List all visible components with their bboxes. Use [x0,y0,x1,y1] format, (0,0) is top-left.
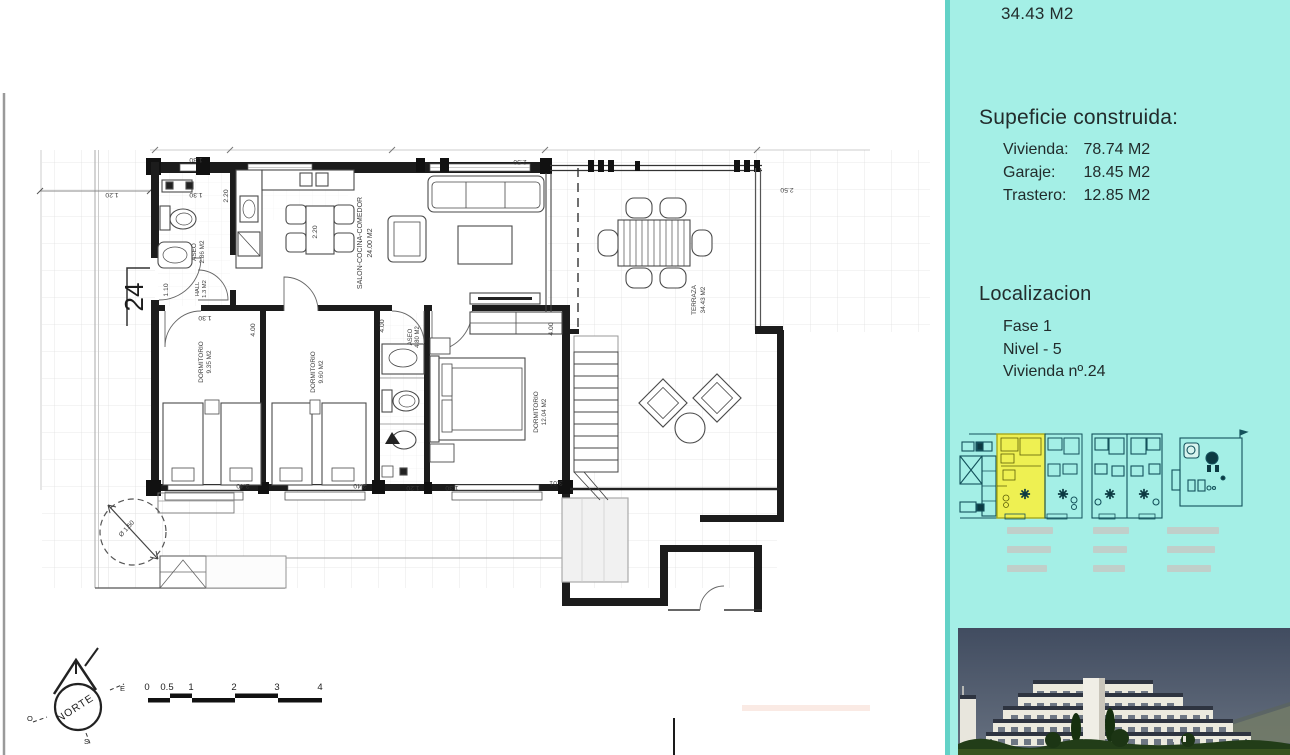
dim-label: 1.20 [406,484,419,491]
faded-stamp [742,705,870,711]
room-hall-area: 1.3 M2 [202,280,208,298]
scale-tick: 2 [231,682,236,693]
scale-tick: 3 [274,682,279,693]
site-plan-thumbnails [957,418,1269,520]
panel-edge [945,0,950,755]
surface-row: Vivienda: 78.74 M2 [1003,138,1178,161]
dim-label: 2.40 [236,482,249,489]
compass-south: S [84,737,89,746]
info-panel: 34.43 M2 Supeficie construida: Vivienda:… [945,0,1290,755]
dim-label: 2.50 [780,186,793,193]
compass-norte-label: NORTE [55,692,96,725]
scale-bar: 0 0.5 1 2 3 4 [144,682,322,703]
surface-row-value: 12.85 M2 [1083,187,1150,204]
room-aseo1-area: 2.86 M2 [199,240,206,264]
dim-label: 1.30 [189,191,202,198]
scale-tick: 0.5 [160,682,173,693]
room-hall-name: HALL [195,281,201,296]
location-row: Vivienda nº.24 [1003,361,1106,384]
dim-label: 1.30 [445,484,458,491]
location-title: Localizacion [979,283,1106,306]
dim-label: 1.20 [105,191,118,198]
floor-plan-drawing: 24 ASEO 2.86 M2 HALL 1.3 M2 SALON-COCINA… [0,0,945,755]
dim-label: 2.20 [223,189,230,202]
compass-east: E [120,684,125,693]
surface-row-label: Garaje: [1003,161,1079,184]
room-aseo2-name: ASEO [408,328,414,345]
north-compass: NORTE E O S [27,648,125,746]
surface-row-value: 18.45 M2 [1083,164,1150,181]
location-section: Localizacion Fase 1 Nivel - 5 Vivienda n… [979,283,1106,384]
room-salon-name: SALON-COCINA-COMEDOR [357,197,364,289]
surface-row-label: Trastero: [1003,184,1079,207]
room-salon-area: 24.00 M2 [367,228,374,257]
surface-section: Supeficie construida: Vivienda: 78.74 M2… [979,106,1178,207]
compass-west: O [27,714,33,723]
dim-label: 1.10 [163,283,170,296]
room-dorm3-name: DORMITORIO [533,391,540,432]
terraza-area-value: 34.43 M2 [1001,4,1073,24]
dim-label: 4.00 [548,322,555,335]
room-aseo1-name: ASEO [191,243,198,261]
room-dorm1-name: DORMITORIO [198,341,205,382]
surface-row-value: 78.74 M2 [1083,141,1150,158]
room-aseo2-area: 4.80 M2 [415,326,421,348]
dim-label: 3.01 [549,479,562,486]
brochure-page: 24 ASEO 2.86 M2 HALL 1.3 M2 SALON-COCINA… [0,0,1290,755]
dim-label: 4.00 [379,319,386,332]
surface-title: Supeficie construida: [979,106,1178,130]
room-dorm2-area: 9.60 M2 [318,360,325,384]
room-terraza-name: TERRAZA [691,284,698,315]
scale-tick: 1 [188,682,193,693]
dim-label: 2.20 [312,225,319,238]
dim-label: 4.00 [250,323,257,336]
dim-label: 1.30 [189,156,202,163]
room-terraza-area: 34.43 M2 [700,286,707,313]
dim-label: 2.50 [513,158,526,165]
scale-tick: 4 [317,682,322,693]
room-dorm3-area: 12.04 M2 [541,398,548,425]
location-row: Fase 1 [1003,316,1106,339]
dim-label: 1.30 [198,314,211,321]
surface-row: Trastero: 12.85 M2 [1003,184,1178,207]
room-dorm2-name: DORMITORIO [310,351,317,392]
location-row: Nivel - 5 [1003,339,1106,362]
scale-tick: 0 [144,682,149,693]
project-photo [958,628,1290,755]
room-dorm1-area: 9.35 M2 [206,350,213,374]
unit-number: 24 [119,283,149,312]
surface-row: Garaje: 18.45 M2 [1003,161,1178,184]
selected-unit-highlight [997,434,1045,518]
surface-row-label: Vivienda: [1003,138,1079,161]
dim-label: 2.40 [353,482,366,489]
